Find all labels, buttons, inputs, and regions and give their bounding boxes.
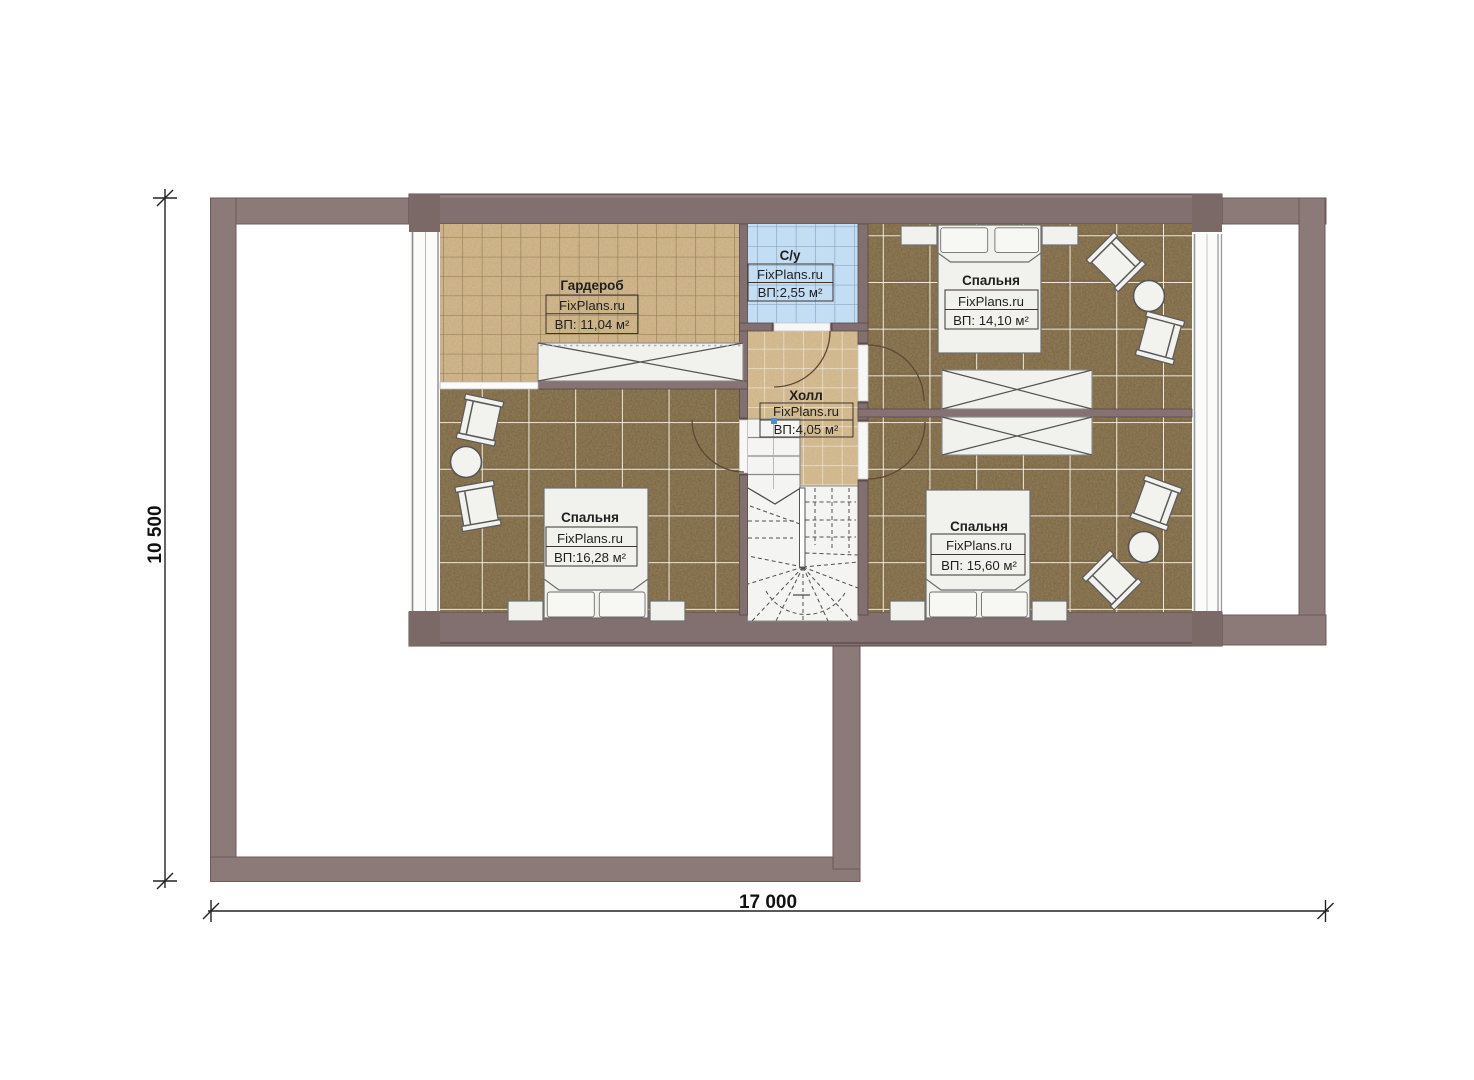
svg-text:Спальня: Спальня [962, 273, 1020, 288]
svg-text:Холл: Холл [789, 388, 823, 403]
svg-text:С/у: С/у [780, 248, 801, 263]
svg-text:ВП:16,28 м²: ВП:16,28 м² [554, 550, 627, 565]
svg-text:ВП: 11,04 м²: ВП: 11,04 м² [555, 317, 630, 332]
svg-text:17 000: 17 000 [739, 892, 797, 913]
svg-text:FixPlans.ru: FixPlans.ru [946, 538, 1012, 553]
svg-text:Спальня: Спальня [950, 519, 1008, 534]
svg-text:FixPlans.ru: FixPlans.ru [757, 267, 823, 282]
svg-text:ВП: 15,60 м²: ВП: 15,60 м² [941, 558, 1017, 573]
svg-text:ВП: 14,10 м²: ВП: 14,10 м² [953, 313, 1029, 328]
svg-text:FixPlans.ru: FixPlans.ru [958, 294, 1024, 309]
svg-text:10 500: 10 500 [145, 505, 166, 563]
svg-text:FixPlans.ru: FixPlans.ru [559, 298, 625, 313]
svg-text:ВП:4,05 м²: ВП:4,05 м² [774, 422, 839, 437]
svg-text:FixPlans.ru: FixPlans.ru [557, 531, 623, 546]
svg-text:Гардероб: Гардероб [560, 278, 623, 293]
svg-text:FixPlans.ru: FixPlans.ru [773, 404, 839, 419]
svg-text:ВП:2,55 м²: ВП:2,55 м² [758, 285, 823, 300]
svg-text:Спальня: Спальня [561, 510, 619, 525]
